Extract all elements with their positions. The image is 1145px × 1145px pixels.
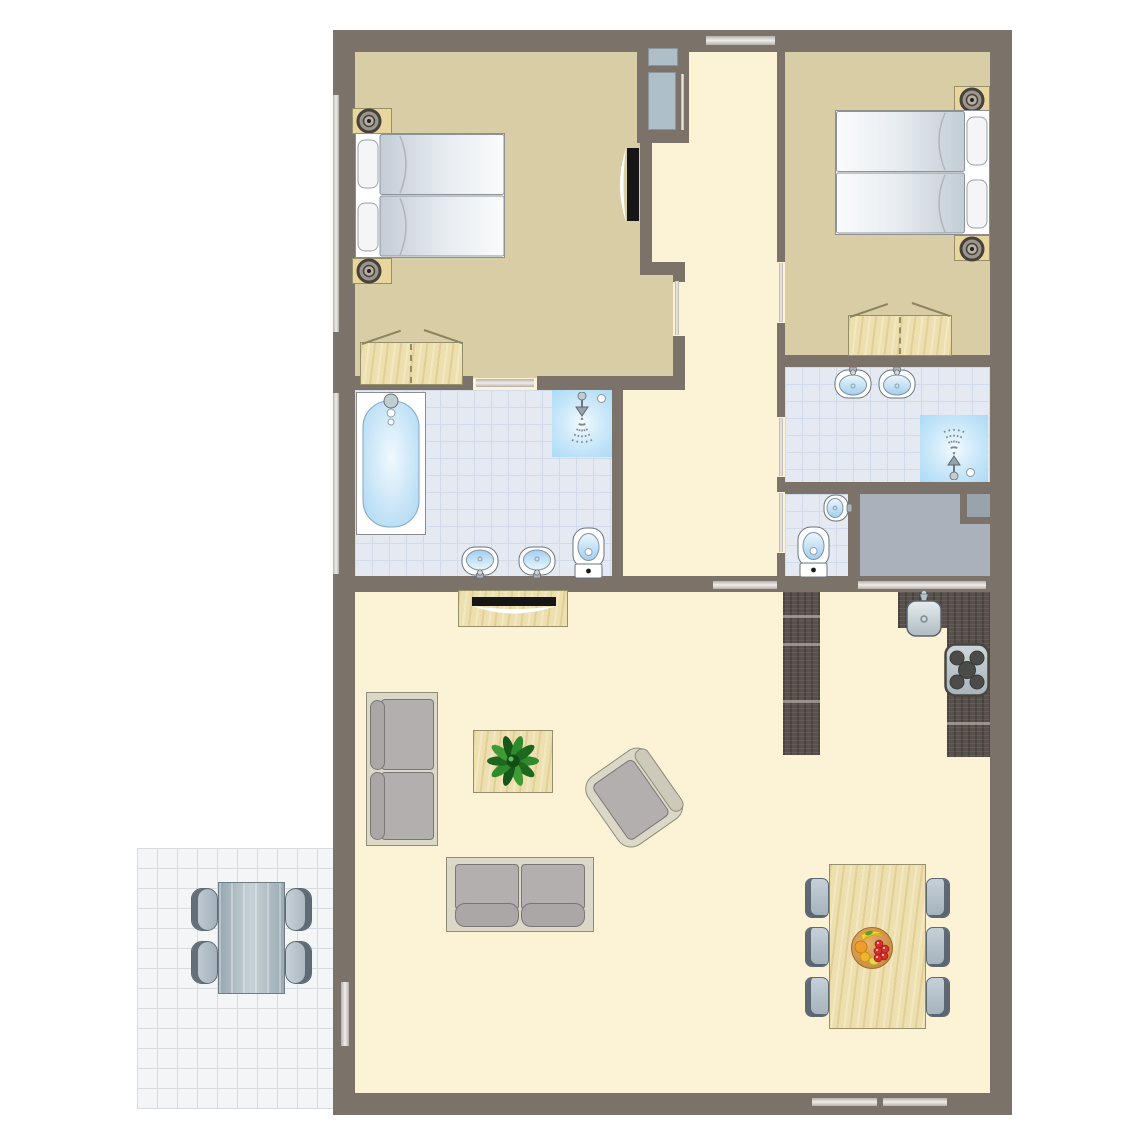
wall-bath-hall xyxy=(612,390,623,578)
terrace-chair xyxy=(285,941,312,984)
fruit-bowl-icon xyxy=(849,925,895,971)
tv-screen-glare xyxy=(612,146,628,224)
counter-seam xyxy=(783,643,820,646)
sofa-back-pillow xyxy=(521,903,585,927)
cooktop xyxy=(944,643,990,697)
dining-chair xyxy=(805,977,829,1017)
table-lamp-icon xyxy=(354,256,384,286)
dining-chair xyxy=(926,927,950,967)
bedroom-left-entry-floor xyxy=(640,275,673,378)
shower-head-icon xyxy=(570,392,594,446)
closet-door xyxy=(681,74,684,130)
wall-tv-icon xyxy=(627,148,639,221)
double-bed xyxy=(835,110,990,235)
shower-head-icon xyxy=(942,426,966,480)
washbasin xyxy=(460,546,500,578)
sofa-back-pillow xyxy=(455,903,519,927)
wall-hall-right-4 xyxy=(777,553,785,590)
closet-shelf xyxy=(648,48,678,66)
wall-exterior-right xyxy=(990,30,1012,1115)
bedroom-right-door xyxy=(779,263,783,322)
sofa-cushion xyxy=(381,772,434,840)
wall-bedroom-bath-right xyxy=(537,376,685,390)
closet-shelf xyxy=(648,72,676,130)
bedroom-left-door xyxy=(675,281,679,335)
ensuite-bath-door xyxy=(476,379,534,387)
window-bedroom-left xyxy=(333,95,339,332)
wardrobe-door-split xyxy=(410,344,412,383)
table-lamp-icon xyxy=(957,234,987,264)
wall-hall-right-2 xyxy=(777,323,785,417)
wall-bedroom-right-bottom xyxy=(785,355,990,367)
dining-chair xyxy=(805,878,829,918)
bathtub xyxy=(356,392,426,535)
hall-living-opening xyxy=(713,581,777,589)
double-bed xyxy=(355,133,505,258)
storage-opening xyxy=(858,581,986,589)
table-lamp-icon xyxy=(354,106,384,136)
shower-drain xyxy=(966,468,975,477)
floor-plan xyxy=(0,0,1145,1145)
dining-chair xyxy=(926,878,950,918)
toilet xyxy=(797,526,830,578)
terrace-chair xyxy=(285,888,312,931)
sofa-cushion xyxy=(381,699,434,770)
washbasin-small xyxy=(822,492,852,524)
washbasin xyxy=(517,546,557,578)
toilet xyxy=(572,527,605,579)
counter-seam xyxy=(783,700,820,703)
sliding-terrace-door xyxy=(341,982,349,1046)
bathroom-right-door xyxy=(779,418,783,476)
sofa-back-pillow xyxy=(370,700,385,770)
storage-compartment xyxy=(967,494,990,517)
entrance-door xyxy=(706,36,775,45)
wardrobe-door-split xyxy=(899,317,901,354)
tv-screen-glare xyxy=(470,605,558,621)
washbasin xyxy=(833,367,873,399)
window-bathroom xyxy=(333,393,339,574)
potted-plant-icon xyxy=(481,729,545,793)
terrace-table xyxy=(218,882,285,994)
counter-seam xyxy=(783,615,820,618)
dining-chair xyxy=(805,927,829,967)
wall-hall-right-3 xyxy=(777,477,785,492)
wc-door xyxy=(779,493,783,552)
kitchen-island xyxy=(783,592,820,755)
wall-bathroom-right-bottom xyxy=(785,482,990,494)
kitchen-sink xyxy=(905,590,943,640)
terrace-chair xyxy=(191,941,218,984)
wall-storage-compartment-h xyxy=(960,517,990,524)
window-dining-1 xyxy=(812,1098,877,1106)
wall-hall-right-1 xyxy=(777,52,785,262)
window-dining-2 xyxy=(883,1098,947,1106)
wall-bedroom-left-jog xyxy=(640,262,685,275)
washbasin xyxy=(877,367,917,399)
terrace-chair xyxy=(191,888,218,931)
counter-seam xyxy=(947,722,990,725)
shower-drain xyxy=(597,394,606,403)
dining-chair xyxy=(926,977,950,1017)
sofa-back-pillow xyxy=(370,772,385,840)
